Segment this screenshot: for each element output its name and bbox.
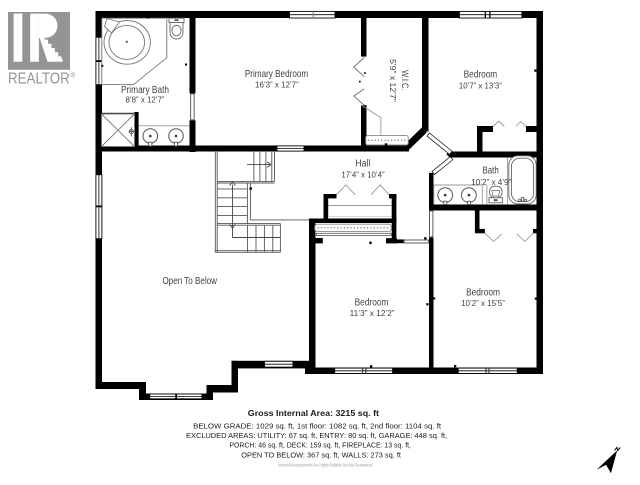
svg-text:8’8” x 12’7”: 8’8” x 12’7”: [126, 95, 165, 104]
svg-text:Internal Measurements Are High: Internal Measurements Are Highly Reliabl…: [278, 462, 373, 467]
svg-text:Bedroom: Bedroom: [464, 69, 498, 80]
svg-text:10’7” x 13’3”: 10’7” x 13’3”: [459, 81, 502, 90]
svg-text:REALTOR: REALTOR: [8, 71, 70, 88]
svg-text:10’2” x 4’9”: 10’2” x 4’9”: [471, 178, 511, 187]
svg-text:5’9” x 12’7”: 5’9” x 12’7”: [388, 59, 397, 102]
svg-text:EXCLUDED AREAS: UTILITY: 67 sq: EXCLUDED AREAS: UTILITY: 67 sq. ft, ENTR…: [186, 431, 447, 440]
svg-text:Bath: Bath: [482, 165, 498, 176]
svg-text:®: ®: [70, 72, 76, 80]
svg-text:10’2” x 15’5”: 10’2” x 15’5”: [461, 299, 505, 308]
svg-text:Gross Internal Area: 3215 sq.: Gross Internal Area: 3215 sq. ft: [248, 408, 379, 418]
svg-text:Bedroom: Bedroom: [466, 288, 500, 299]
svg-text:Primary Bath: Primary Bath: [121, 85, 169, 96]
svg-text:Primary Bedroom: Primary Bedroom: [245, 69, 308, 80]
svg-text:Open To Below: Open To Below: [163, 276, 218, 287]
svg-text:W.I.C.: W.I.C.: [400, 70, 410, 91]
svg-text:PORCH: 46 sq. ft, DECK: 159 sq: PORCH: 46 sq. ft, DECK: 159 sq. ft, FIRE…: [229, 441, 411, 450]
svg-text:Hall: Hall: [355, 158, 370, 169]
svg-text:11’3” x 12’2”: 11’3” x 12’2”: [350, 309, 395, 318]
svg-text:OPEN TO BELOW: 367 sq. ft, WAL: OPEN TO BELOW: 367 sq. ft, WALLS: 273 sq…: [241, 450, 401, 459]
svg-text:17’4” x 10’4”: 17’4” x 10’4”: [341, 171, 385, 180]
svg-text:Bedroom: Bedroom: [355, 297, 389, 308]
svg-text:16’3” x 12’7”: 16’3” x 12’7”: [255, 81, 299, 90]
svg-text:BELOW GRADE: 1029 sq. ft, 1st: BELOW GRADE: 1029 sq. ft, 1st floor: 108…: [193, 421, 441, 430]
